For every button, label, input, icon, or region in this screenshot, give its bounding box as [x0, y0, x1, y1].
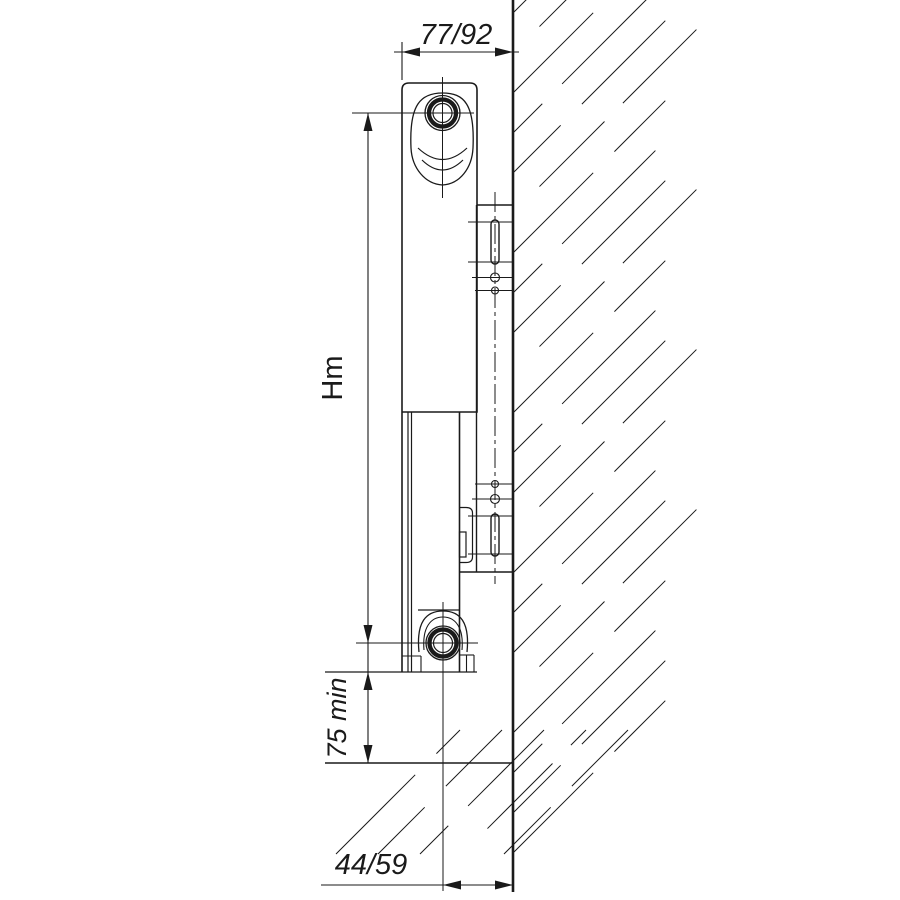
dimension-label-top-width: 77/92	[420, 19, 493, 51]
drawing-root: 77/92 Hm 75 min 44/59	[317, 0, 704, 892]
arrowhead-left	[443, 881, 461, 890]
dimension-floor-clearance: 75 min	[322, 672, 373, 763]
arrowhead-up	[364, 672, 373, 690]
dimension-label-mount-height: Hm	[317, 355, 349, 400]
bottom-connection-port	[356, 602, 478, 891]
radiator-top-section	[402, 83, 477, 412]
floor-hatching	[336, 730, 628, 854]
arrowhead-up	[364, 113, 373, 131]
dimension-wall-offset: 44/59	[321, 842, 513, 891]
arrowhead-down	[364, 745, 373, 763]
dimension-label-wall-offset: 44/59	[335, 849, 408, 881]
technical-drawing-canvas: 77/92 Hm 75 min 44/59	[0, 0, 900, 900]
dimension-mount-height: Hm	[317, 113, 373, 763]
top-connection-port	[352, 77, 474, 198]
wall-hatching	[514, 0, 704, 852]
dimension-top-width: 77/92	[394, 19, 519, 80]
wall-section	[513, 0, 704, 892]
arrowhead-right	[495, 48, 513, 57]
arrowhead-down	[364, 625, 373, 643]
arrowhead-right	[495, 881, 513, 890]
arrowhead-left	[402, 48, 420, 57]
dimension-label-floor-clearance: 75 min	[322, 677, 352, 758]
mounting-bracket	[460, 192, 513, 584]
